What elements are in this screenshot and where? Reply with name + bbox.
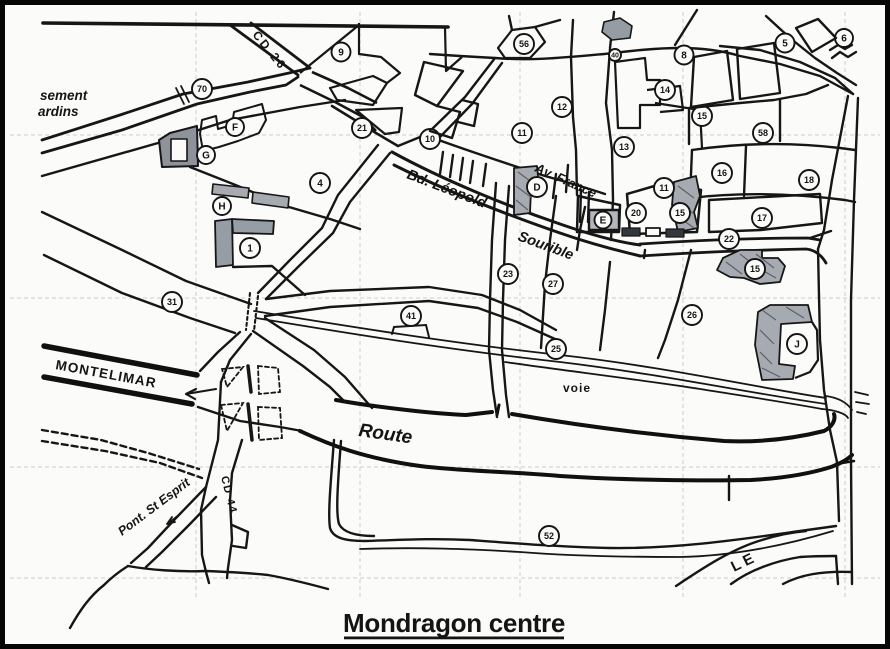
svg-text:31: 31: [167, 297, 177, 307]
svg-text:15: 15: [675, 208, 685, 218]
svg-text:16: 16: [717, 168, 727, 178]
svg-text:21: 21: [357, 123, 367, 133]
svg-text:41: 41: [406, 311, 416, 321]
svg-text:5: 5: [782, 39, 788, 50]
svg-text:26: 26: [687, 310, 697, 320]
svg-text:6: 6: [841, 34, 847, 45]
svg-text:Mondragon centre: Mondragon centre: [343, 608, 565, 638]
svg-text:D: D: [533, 183, 540, 194]
svg-text:11: 11: [517, 128, 527, 138]
svg-text:11: 11: [659, 183, 669, 193]
svg-text:20: 20: [631, 208, 641, 218]
svg-text:F: F: [232, 123, 238, 134]
svg-text:23: 23: [503, 269, 513, 279]
svg-text:15: 15: [697, 111, 707, 121]
svg-text:H: H: [218, 202, 225, 213]
svg-text:1: 1: [247, 244, 253, 255]
svg-text:12: 12: [557, 102, 567, 112]
svg-text:13: 13: [619, 142, 629, 152]
svg-text:ardins: ardins: [38, 104, 79, 119]
svg-text:J: J: [794, 340, 800, 351]
svg-text:17: 17: [757, 213, 767, 223]
svg-text:15: 15: [750, 264, 760, 274]
svg-text:40: 40: [611, 53, 619, 60]
svg-text:G: G: [202, 151, 210, 162]
svg-text:10: 10: [425, 134, 435, 144]
svg-text:22: 22: [724, 234, 734, 244]
svg-text:58: 58: [758, 128, 768, 138]
svg-text:14: 14: [660, 85, 670, 95]
svg-text:8: 8: [681, 51, 687, 62]
svg-text:52: 52: [544, 531, 554, 541]
svg-text:E: E: [600, 216, 607, 227]
svg-text:voie: voie: [563, 381, 591, 395]
svg-text:9: 9: [338, 48, 344, 59]
svg-text:18: 18: [804, 175, 814, 185]
svg-text:27: 27: [548, 279, 558, 289]
svg-text:sement: sement: [40, 88, 88, 103]
svg-text:4: 4: [317, 179, 323, 190]
svg-text:56: 56: [519, 39, 529, 49]
svg-text:25: 25: [551, 344, 561, 354]
svg-text:70: 70: [197, 84, 207, 94]
